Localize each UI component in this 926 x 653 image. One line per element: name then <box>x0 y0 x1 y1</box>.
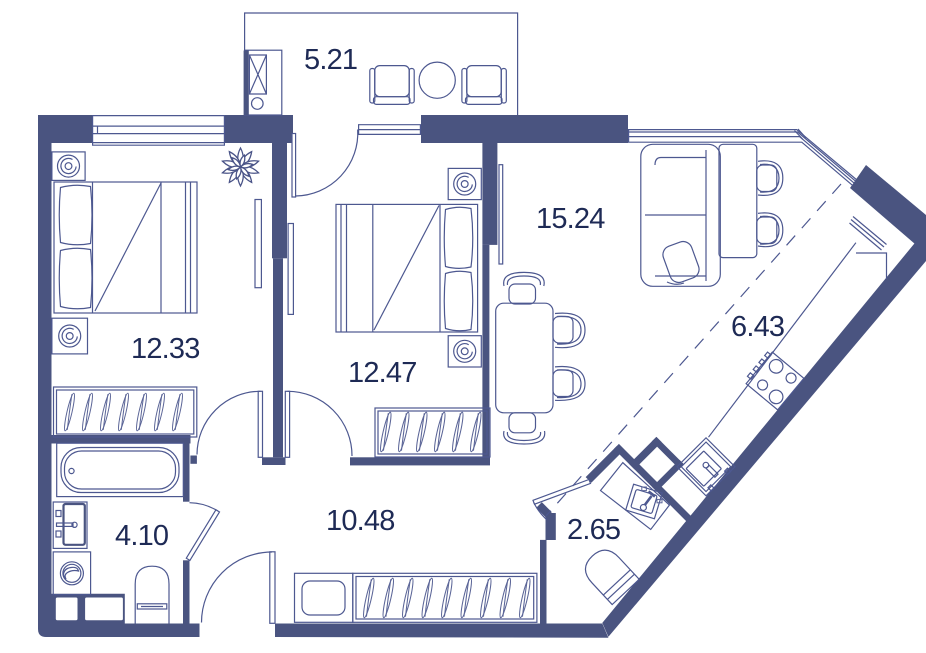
svg-text:15.24: 15.24 <box>536 203 605 235</box>
svg-text:2.65: 2.65 <box>567 514 620 546</box>
svg-text:12.47: 12.47 <box>348 357 417 389</box>
svg-text:4.10: 4.10 <box>115 520 168 552</box>
svg-text:12.33: 12.33 <box>131 333 200 365</box>
svg-text:6.43: 6.43 <box>731 311 784 343</box>
svg-text:10.48: 10.48 <box>326 505 395 537</box>
svg-text:5.21: 5.21 <box>304 44 357 76</box>
